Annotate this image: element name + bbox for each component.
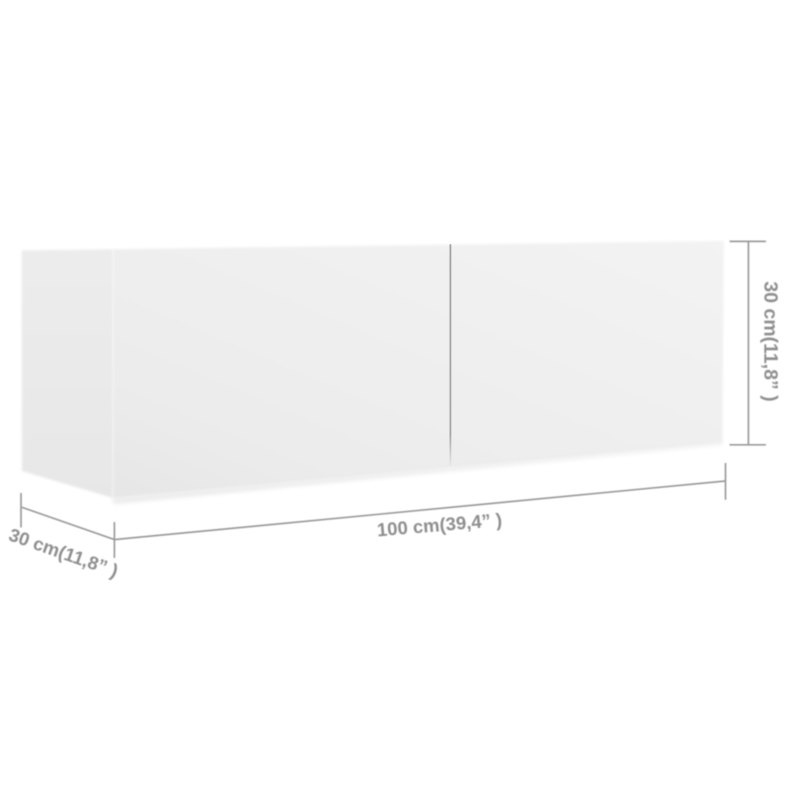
svg-text:30 cm(11,8” ): 30 cm(11,8” ) — [759, 281, 781, 401]
